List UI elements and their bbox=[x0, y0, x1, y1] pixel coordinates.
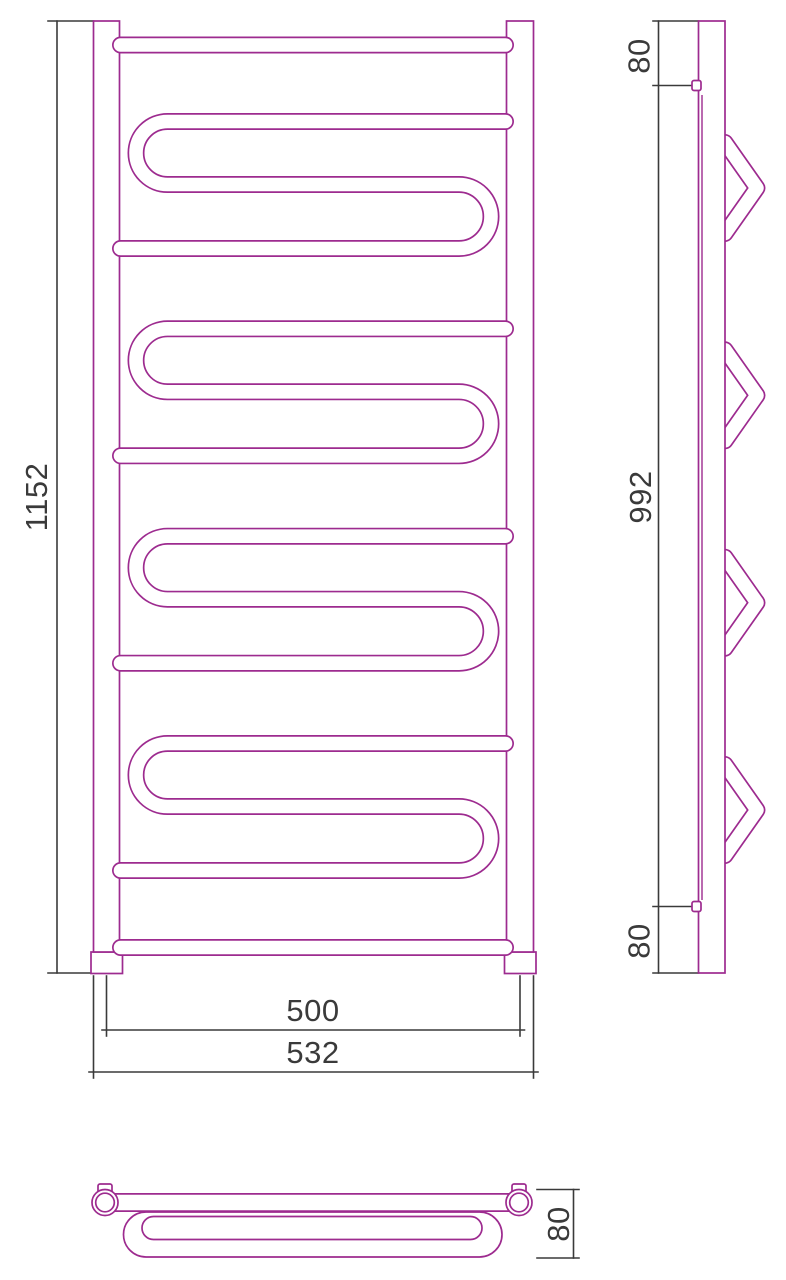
front-serpentine-2 bbox=[121, 329, 506, 456]
front-serpentine-4 bbox=[121, 744, 506, 871]
side-span-label: 992 bbox=[623, 470, 658, 523]
towel-rail-drawing: 1152 500 532 bbox=[0, 0, 786, 1280]
side-loop-2 bbox=[725, 350, 757, 441]
side-loop-3 bbox=[725, 557, 757, 648]
side-loop-4 bbox=[725, 765, 757, 856]
top-left-union bbox=[92, 1190, 118, 1216]
front-left-collector bbox=[94, 21, 120, 952]
top-depth-label: 80 bbox=[541, 1206, 576, 1241]
side-wall-bracket-bottom bbox=[692, 902, 701, 912]
side-dimensions: 80 992 80 bbox=[622, 21, 699, 973]
technical-drawing-canvas: 1152 500 532 bbox=[0, 0, 786, 1280]
front-height-dimension: 1152 bbox=[19, 21, 94, 973]
top-inner-loop bbox=[142, 1217, 482, 1240]
side-view: 80 992 80 bbox=[622, 21, 758, 973]
side-wall-bracket-top bbox=[692, 81, 701, 91]
top-right-union bbox=[506, 1190, 532, 1216]
front-height-label: 1152 bbox=[19, 463, 54, 532]
side-bottom-offset-label: 80 bbox=[622, 923, 657, 958]
front-serpentine-1 bbox=[121, 122, 506, 249]
side-loop-1 bbox=[725, 143, 757, 234]
front-serpentine-3 bbox=[121, 536, 506, 663]
width532-label: 532 bbox=[286, 1035, 339, 1070]
top-depth-dimension: 80 bbox=[537, 1190, 579, 1259]
front-right-collector bbox=[507, 21, 534, 952]
front-right-foot bbox=[505, 952, 537, 974]
front-view: 1152 500 532 bbox=[19, 21, 538, 1078]
width500-label: 500 bbox=[286, 993, 339, 1028]
front-width-dimensions: 500 532 bbox=[89, 976, 538, 1078]
top-view: 80 bbox=[92, 1184, 579, 1258]
side-top-offset-label: 80 bbox=[622, 38, 657, 73]
